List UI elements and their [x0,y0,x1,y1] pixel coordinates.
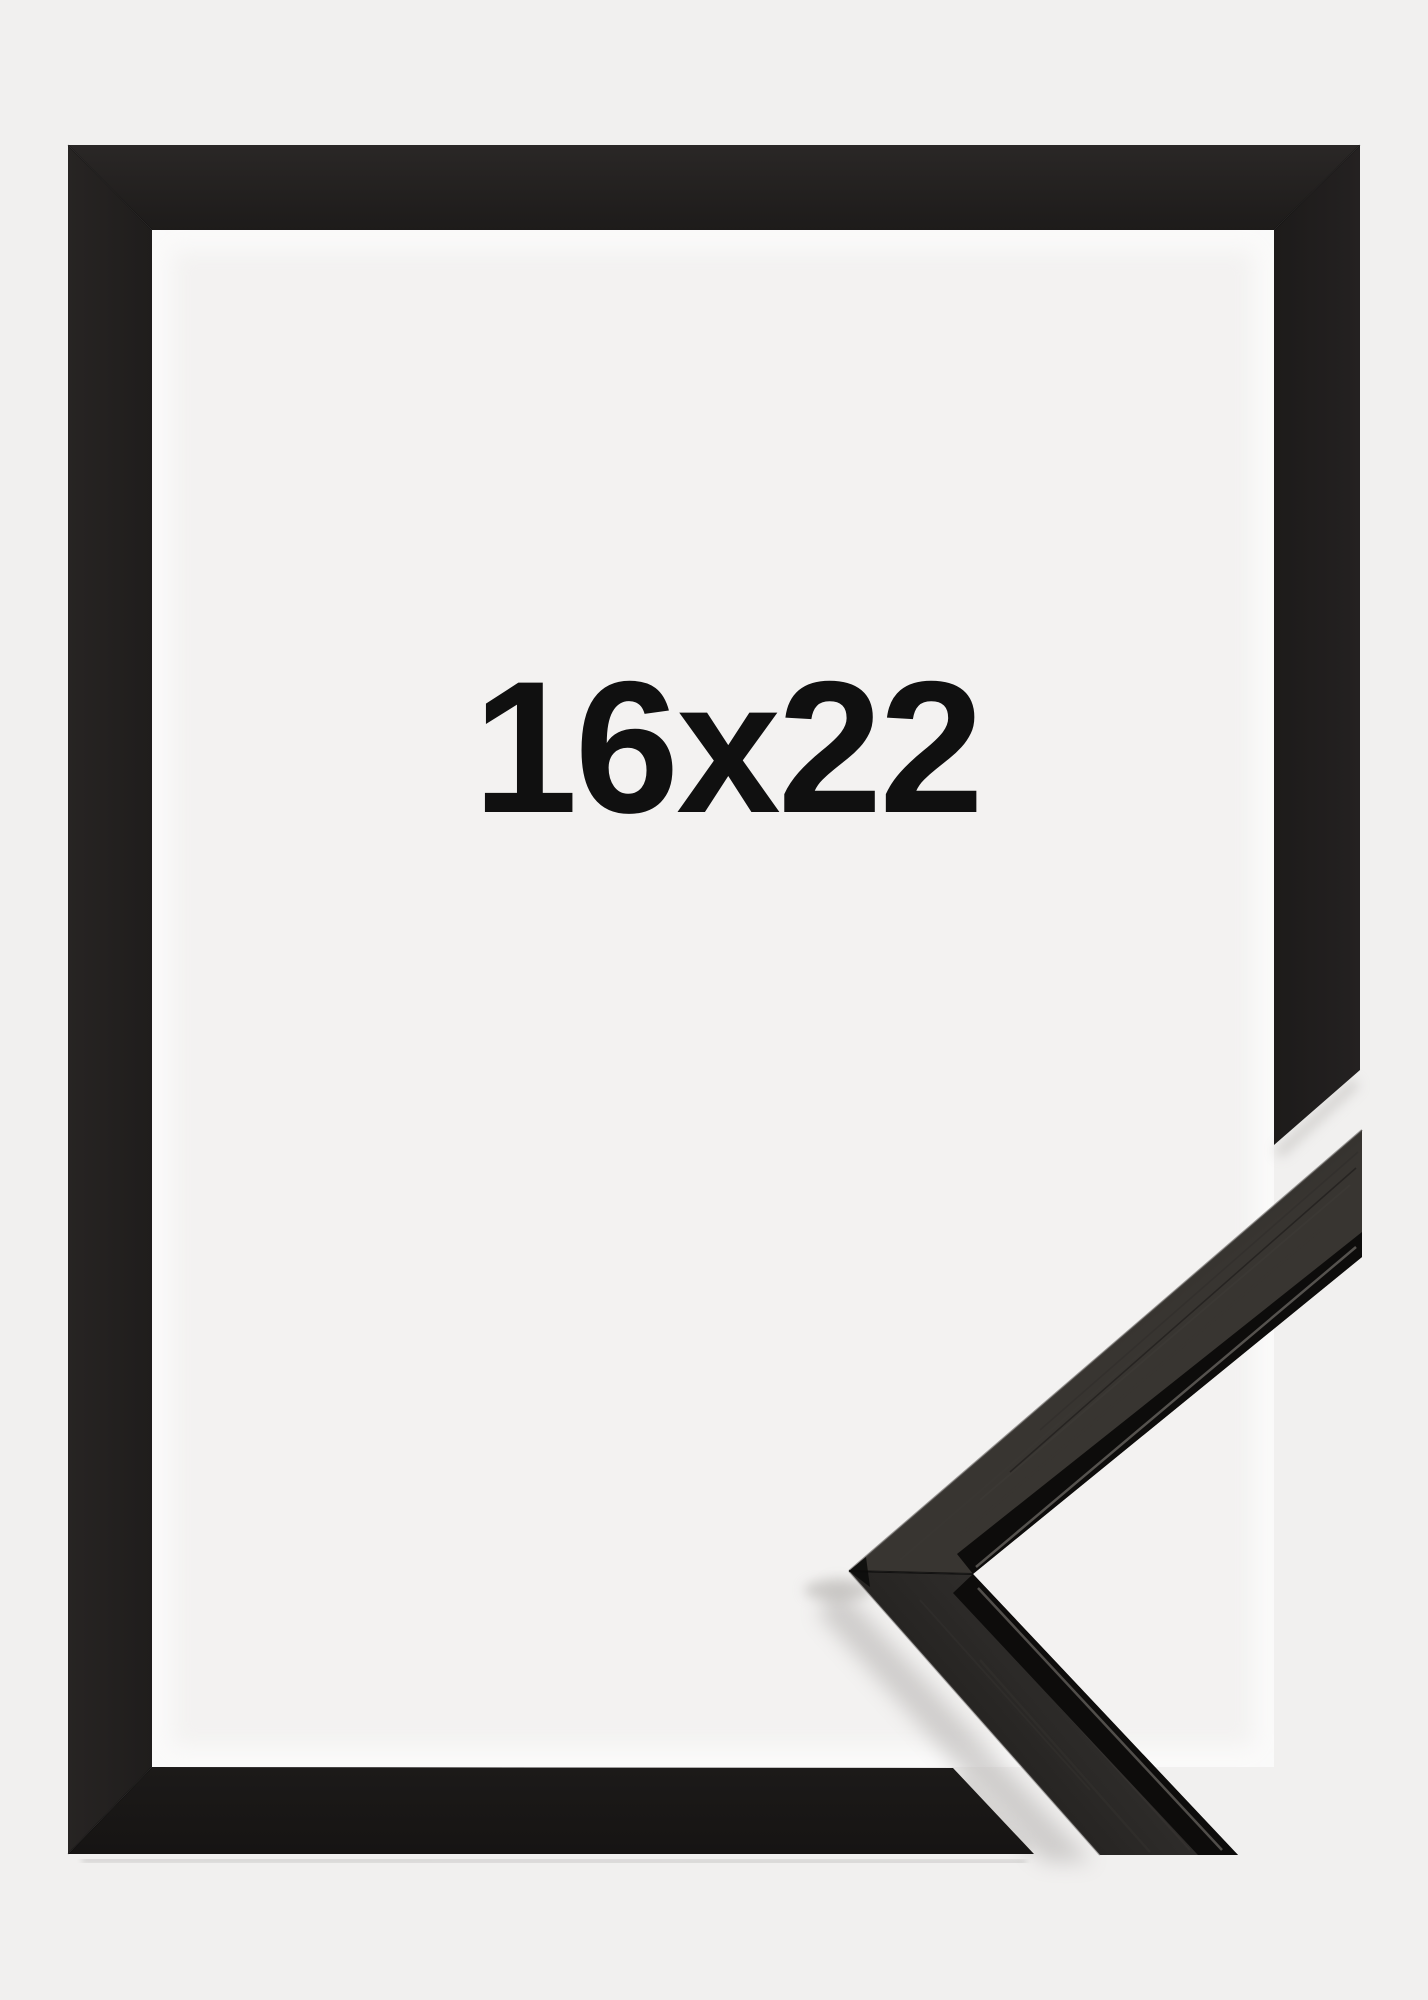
mat-surface [152,230,1274,1767]
size-label: 16x22 [473,642,981,852]
frame-bar-right [1274,145,1360,1145]
frame-bottom-shadow [82,1860,1026,1862]
frame-bar-left [68,145,152,1854]
product-photo: 16x22 [0,0,1428,2000]
frame-window [152,230,1274,1767]
frame-bar-bottom [68,1767,1034,1854]
frame-bar-top [68,145,1360,230]
frame-product-image: 16x22 [0,0,1428,2000]
